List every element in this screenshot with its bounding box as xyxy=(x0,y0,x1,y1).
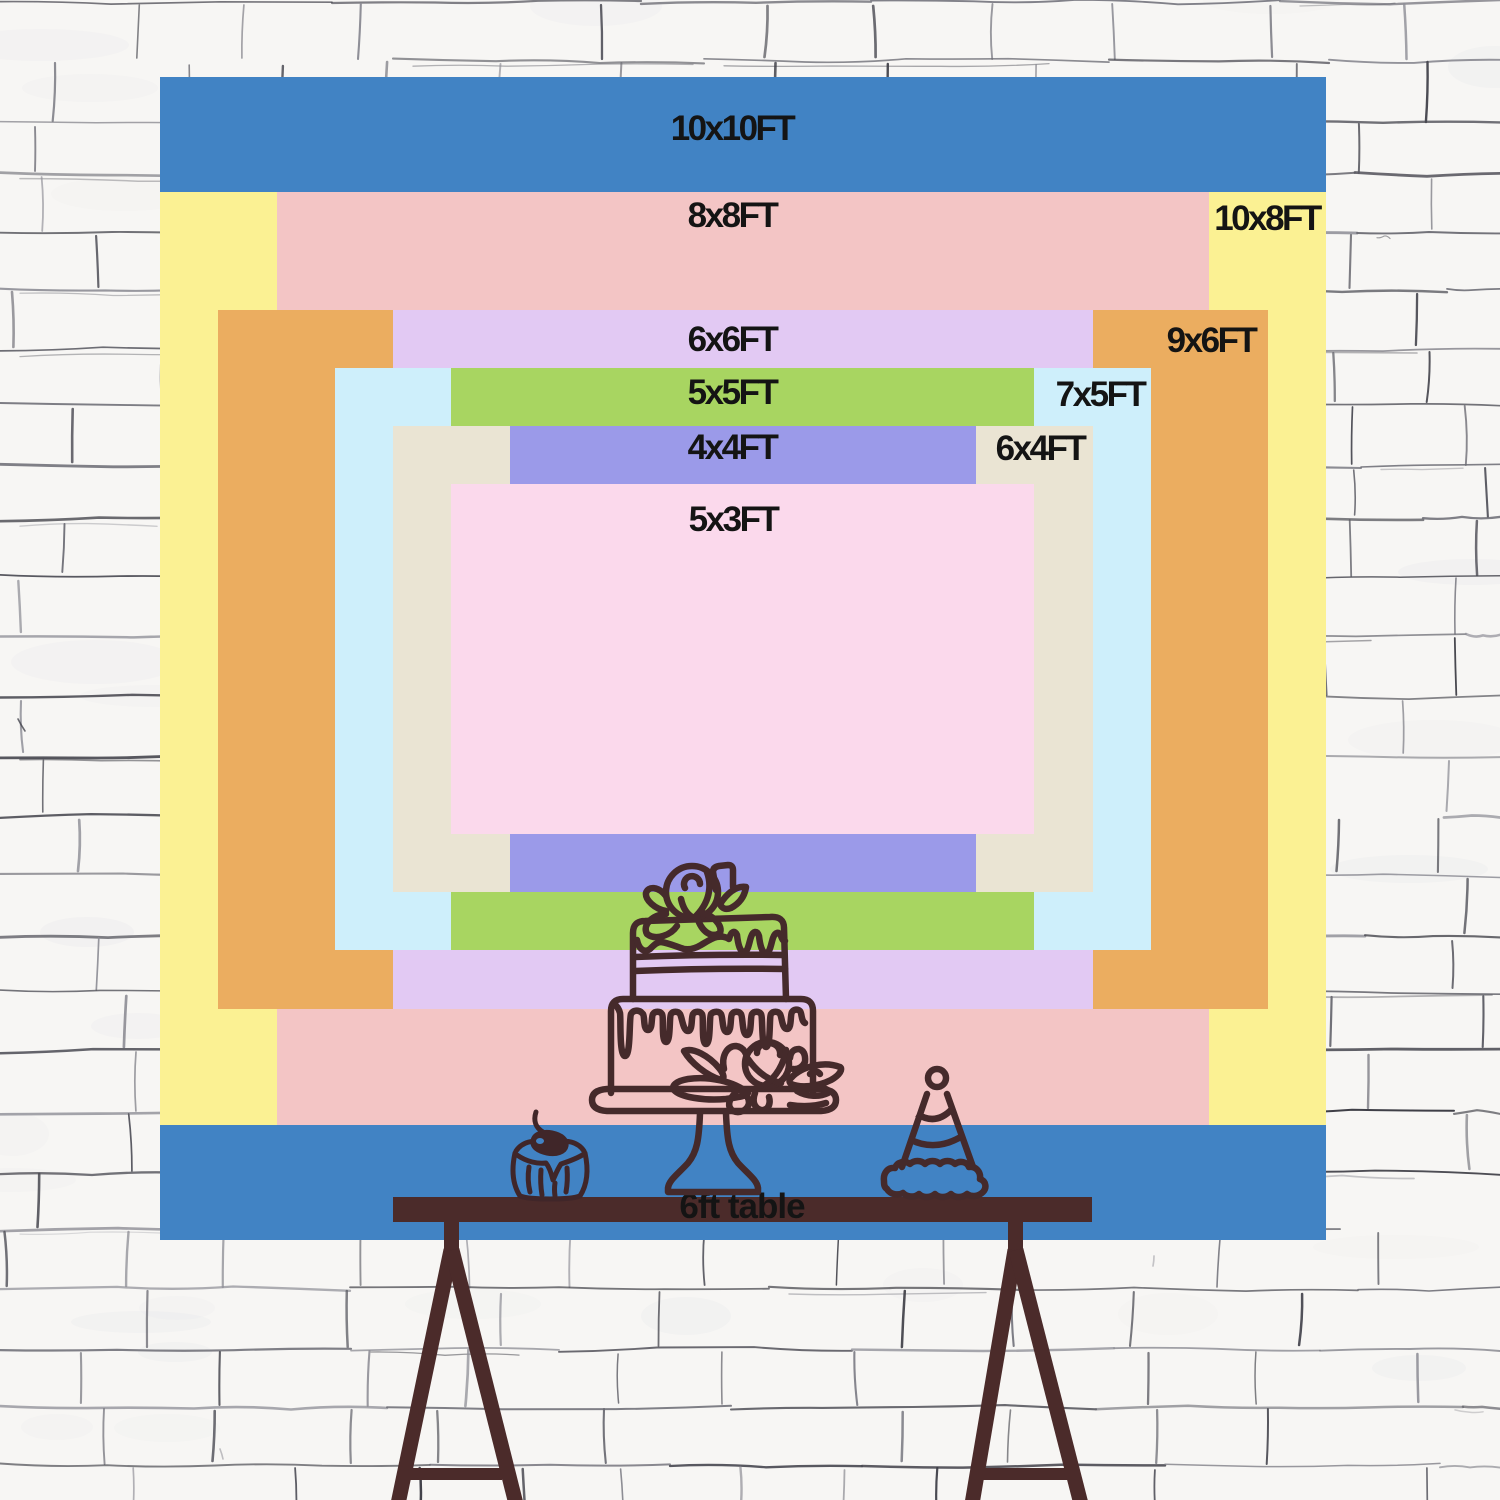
svg-text:7x5FT: 7x5FT xyxy=(1056,375,1147,414)
svg-text:6x4FT: 6x4FT xyxy=(996,429,1087,468)
svg-text:6x6FT: 6x6FT xyxy=(688,320,779,359)
svg-text:5x5FT: 5x5FT xyxy=(688,373,779,412)
svg-text:10x8FT: 10x8FT xyxy=(1214,199,1322,238)
svg-text:4x4FT: 4x4FT xyxy=(688,428,779,467)
svg-text:8x8FT: 8x8FT xyxy=(688,196,779,235)
svg-text:10x10FT: 10x10FT xyxy=(671,109,796,148)
svg-text:5x3FT: 5x3FT xyxy=(689,500,780,539)
svg-text:9x6FT: 9x6FT xyxy=(1167,321,1258,360)
